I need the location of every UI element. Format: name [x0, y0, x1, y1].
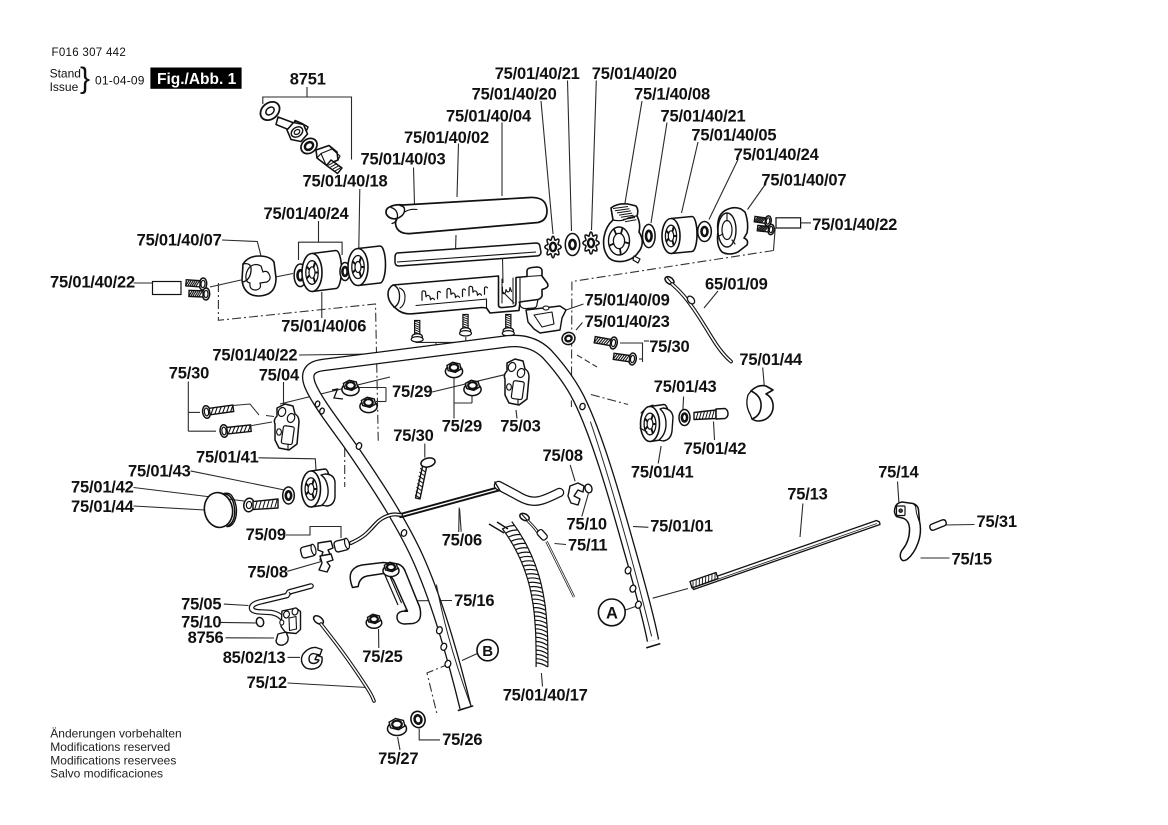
svg-text:75/01/41: 75/01/41	[196, 449, 259, 467]
svg-text:75/08: 75/08	[543, 447, 583, 465]
svg-text:75/01/40/05: 75/01/40/05	[691, 127, 776, 145]
svg-text:75/16: 75/16	[454, 592, 494, 610]
svg-text:75/04: 75/04	[259, 367, 300, 385]
svg-text:75/26: 75/26	[442, 731, 482, 749]
svg-text:B: B	[482, 643, 493, 660]
svg-text:75/14: 75/14	[878, 464, 919, 482]
svg-text:75/01/40/18: 75/01/40/18	[303, 173, 388, 191]
svg-text:75/15: 75/15	[952, 551, 992, 569]
svg-text:01-04-09: 01-04-09	[95, 73, 145, 87]
svg-text:F016 307 442: F016 307 442	[52, 47, 127, 59]
svg-text:75/01/42: 75/01/42	[684, 440, 747, 458]
svg-text:75/01/40/24: 75/01/40/24	[264, 205, 350, 223]
svg-text:75/01/40/24: 75/01/40/24	[734, 146, 820, 164]
svg-text:75/01/44: 75/01/44	[71, 498, 135, 516]
svg-text:75/01/41: 75/01/41	[631, 464, 694, 482]
svg-text:8751: 8751	[290, 71, 326, 89]
svg-text:75/01/40/22: 75/01/40/22	[812, 216, 897, 234]
svg-text:75/01/40/22: 75/01/40/22	[212, 347, 297, 365]
svg-text:75/01/43: 75/01/43	[654, 378, 717, 396]
svg-text:75/09: 75/09	[246, 526, 286, 544]
svg-text:75/30: 75/30	[649, 338, 689, 356]
svg-text:75/01/01: 75/01/01	[650, 518, 713, 536]
svg-text:75/01/40/03: 75/01/40/03	[361, 151, 446, 169]
svg-text:75/01/40/23: 75/01/40/23	[585, 313, 670, 331]
svg-text:75/10: 75/10	[567, 516, 607, 534]
svg-text:85/02/13: 85/02/13	[223, 649, 286, 667]
svg-text:75/08: 75/08	[248, 564, 288, 582]
svg-text:75/01/40/07: 75/01/40/07	[137, 232, 222, 250]
svg-text:75/05: 75/05	[181, 595, 221, 613]
svg-text:75/01/40/20: 75/01/40/20	[592, 65, 677, 83]
svg-text:A: A	[606, 605, 618, 623]
svg-text:75/01/42: 75/01/42	[71, 478, 134, 496]
svg-text:Änderungen vorbehalten: Änderungen vorbehalten	[50, 727, 181, 741]
svg-text:75/01/44: 75/01/44	[739, 351, 803, 369]
svg-text:75/01/40/17: 75/01/40/17	[503, 687, 588, 705]
svg-text:75/11: 75/11	[568, 536, 607, 554]
svg-text:75/31: 75/31	[977, 513, 1017, 531]
svg-text:65/01/09: 65/01/09	[705, 276, 768, 294]
svg-text:75/29: 75/29	[442, 418, 482, 436]
svg-text:75/12: 75/12	[247, 674, 287, 692]
svg-text:75/01/40/09: 75/01/40/09	[585, 292, 670, 310]
svg-text:Issue: Issue	[50, 80, 79, 94]
svg-text:75/01/43: 75/01/43	[128, 462, 191, 480]
svg-text:75/01/40/02: 75/01/40/02	[404, 129, 489, 147]
svg-text:75/13: 75/13	[787, 485, 827, 503]
svg-text:75/01/40/04: 75/01/40/04	[446, 107, 532, 125]
svg-text:Modifications reserved: Modifications reserved	[50, 740, 170, 754]
svg-text:75/01/40/21: 75/01/40/21	[495, 65, 580, 83]
svg-text:75/03: 75/03	[500, 418, 540, 436]
svg-text:75/01/40/21: 75/01/40/21	[661, 107, 746, 125]
svg-text:Fig./Abb. 1: Fig./Abb. 1	[157, 71, 237, 88]
svg-text:75/06: 75/06	[442, 531, 482, 549]
svg-text:75/01/40/07: 75/01/40/07	[761, 171, 846, 189]
svg-text:75/01/40/20: 75/01/40/20	[472, 86, 557, 104]
svg-text:75/01/40/22: 75/01/40/22	[50, 274, 135, 292]
svg-text:75/29: 75/29	[392, 383, 432, 401]
svg-text:Salvo modificaciones: Salvo modificaciones	[50, 767, 163, 781]
svg-text:75/25: 75/25	[362, 648, 402, 666]
svg-text:75/30: 75/30	[169, 365, 209, 383]
svg-text:}: }	[80, 62, 90, 95]
svg-text:Stand: Stand	[50, 66, 81, 80]
svg-text:Modifications reservees: Modifications reservees	[50, 753, 176, 767]
svg-text:75/1/40/08: 75/1/40/08	[634, 86, 710, 104]
svg-text:8756: 8756	[188, 629, 224, 647]
svg-text:75/27: 75/27	[378, 750, 418, 768]
svg-text:75/30: 75/30	[393, 427, 433, 445]
svg-text:75/01/40/06: 75/01/40/06	[281, 318, 366, 336]
